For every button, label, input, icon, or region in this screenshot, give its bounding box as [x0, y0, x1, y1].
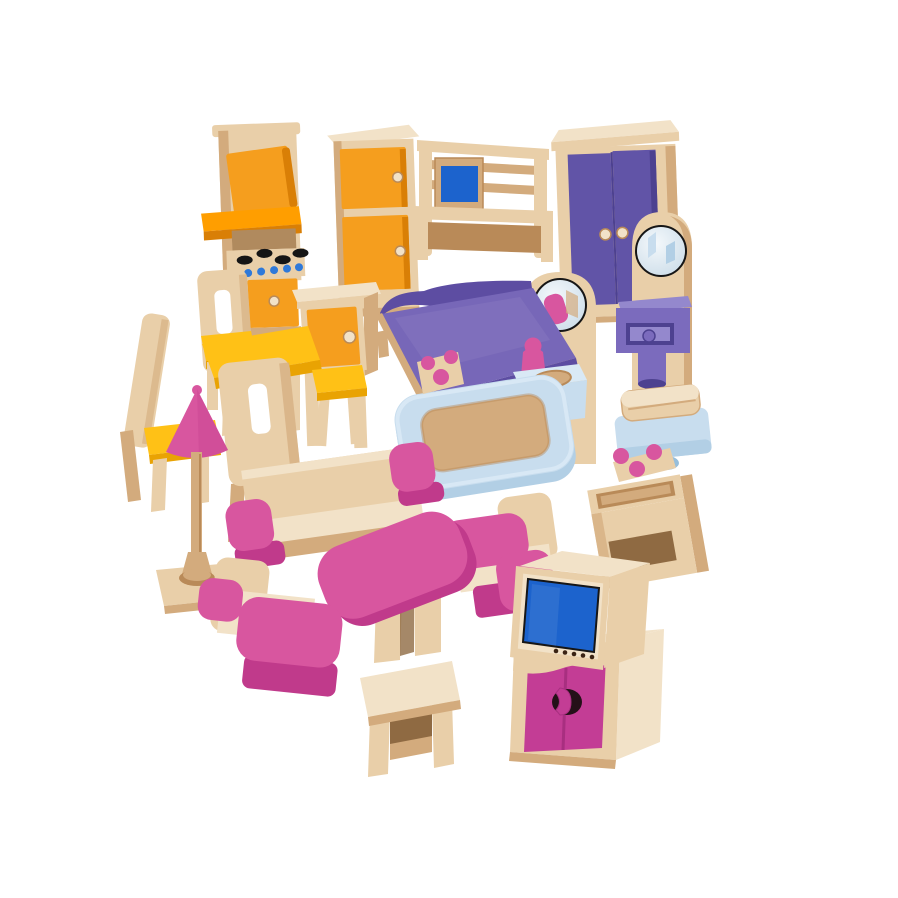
tap-knob [646, 444, 662, 460]
fridge-knob [393, 172, 403, 182]
microwave-door [226, 145, 298, 217]
armchair-armrest [196, 577, 244, 623]
sofa-armrest [387, 440, 437, 494]
armchair-armrest [234, 595, 344, 670]
tv-side [604, 563, 650, 668]
dollhouse-furniture-illustration: Wooden dollhouse furniture set of 25 pie… [0, 0, 898, 898]
tap-knob [433, 369, 449, 385]
tap-knob [629, 461, 645, 477]
fridge-knob [395, 246, 405, 256]
cabinet-knob [343, 331, 356, 344]
oven-knob [269, 296, 279, 306]
mirror [636, 226, 686, 276]
drawer-knob [643, 330, 655, 342]
sofa-armrest [224, 497, 277, 553]
product-photo: Wooden dollhouse furniture set of 25 pie… [0, 0, 898, 898]
cot-blue-panel [441, 166, 478, 202]
tap-knob [421, 356, 435, 370]
tap-knob [613, 448, 629, 464]
television [510, 551, 650, 670]
wardrobe-knob [617, 227, 628, 238]
wardrobe-knob [600, 229, 611, 240]
tap-knob [444, 350, 458, 364]
stool-seat [312, 365, 367, 393]
